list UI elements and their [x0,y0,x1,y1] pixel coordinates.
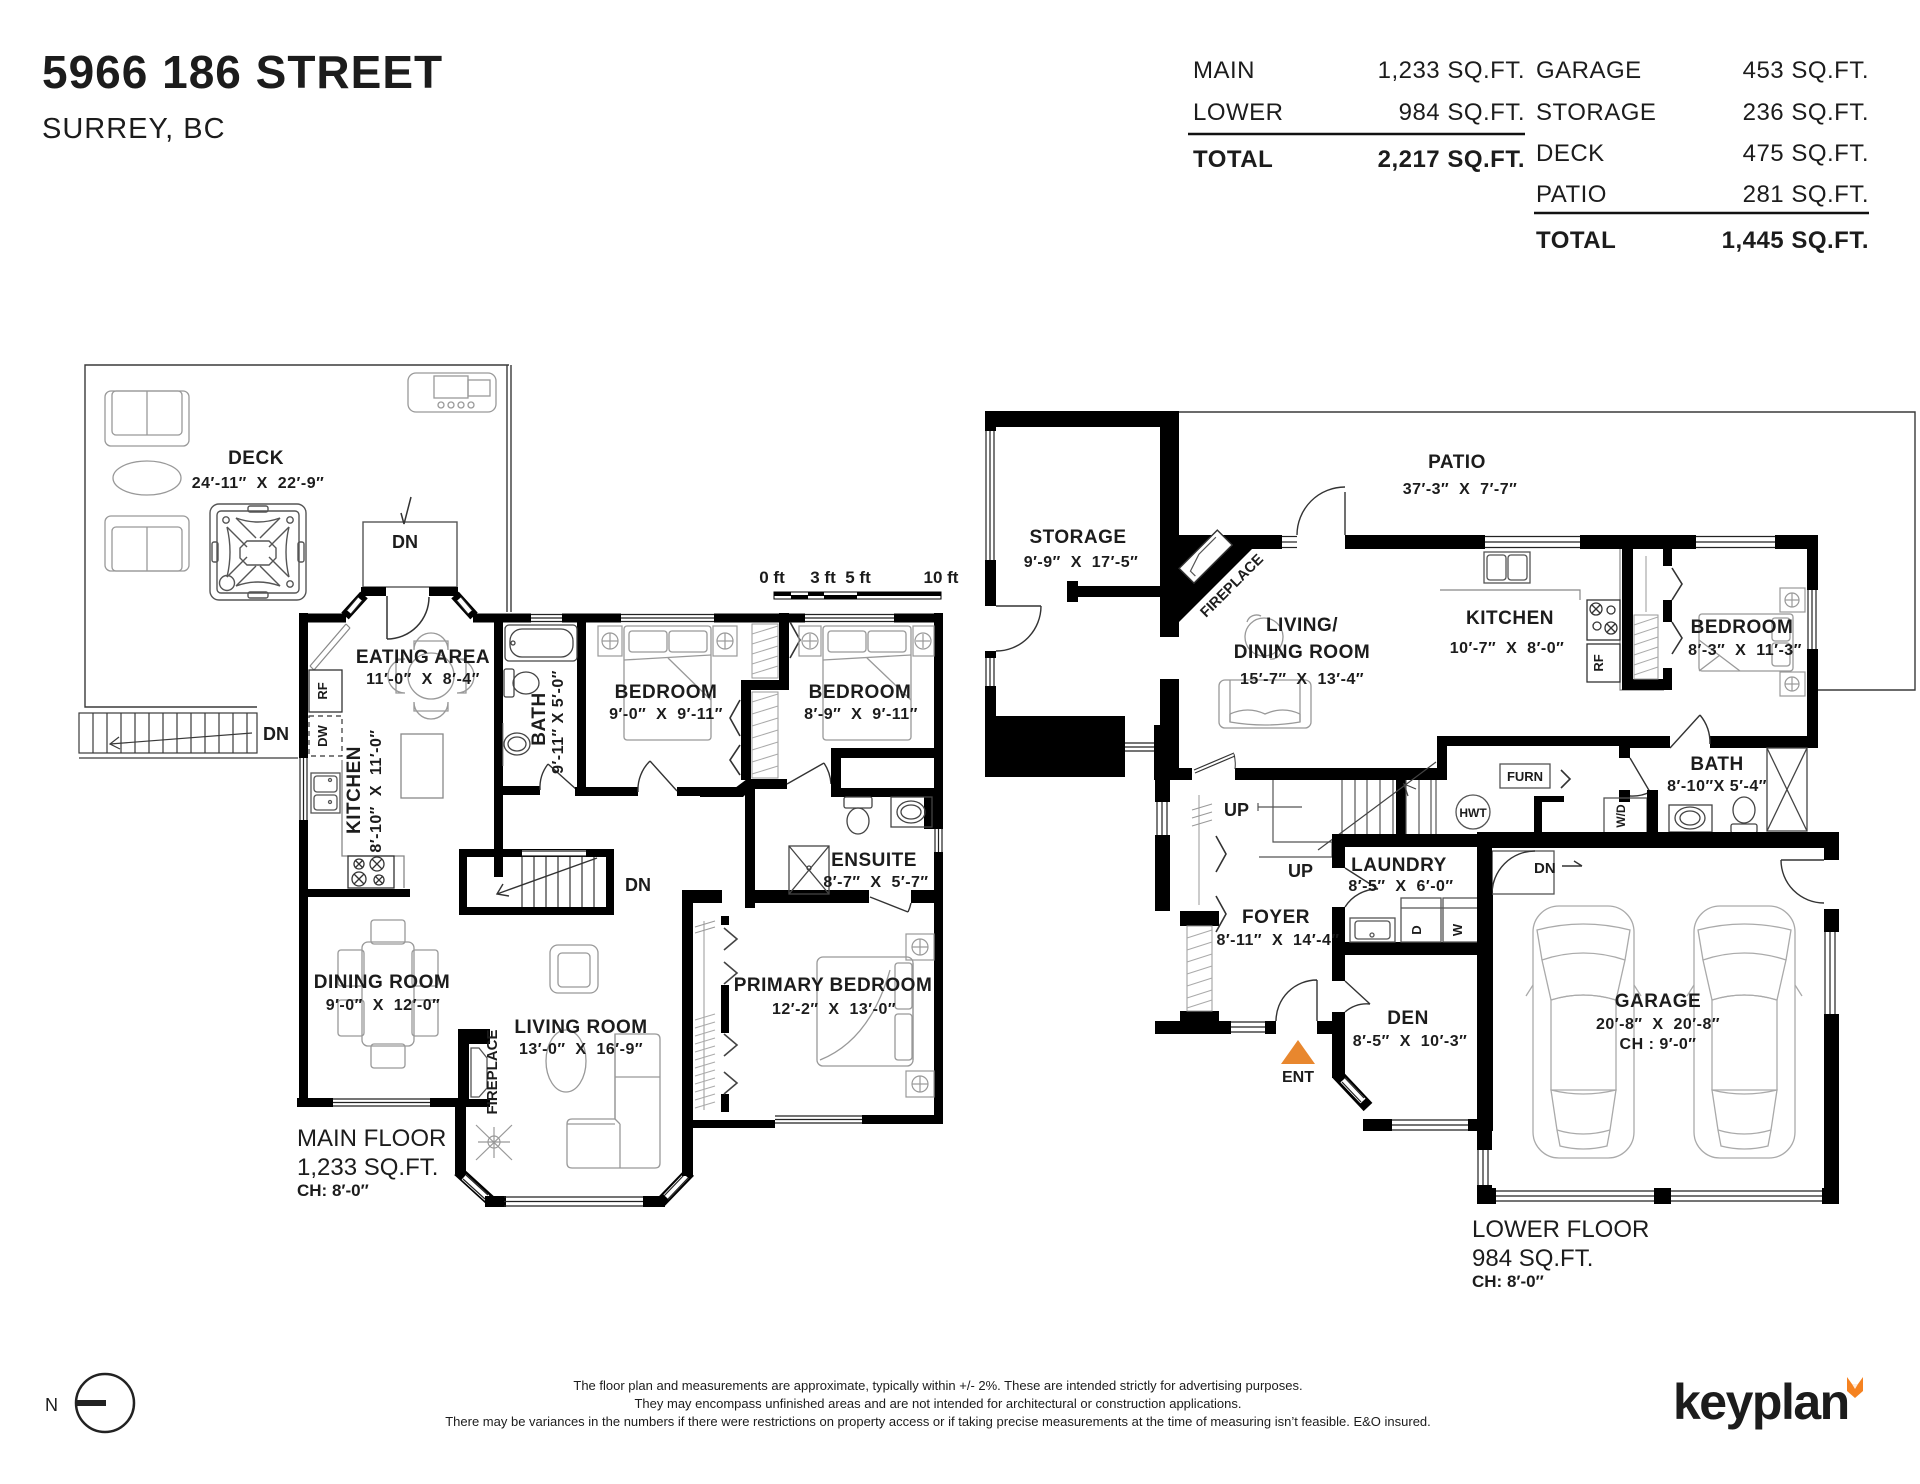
svg-text:LIVING/: LIVING/ [1266,615,1338,636]
svg-text:N: N [45,1395,58,1415]
svg-text:MAIN FLOOR: MAIN FLOOR [297,1125,446,1152]
svg-text:LAUNDRY: LAUNDRY [1351,855,1447,876]
svg-text:1,445 SQ.FT.: 1,445 SQ.FT. [1722,227,1869,254]
svg-text:D: D [1409,925,1424,934]
svg-text:KITCHEN: KITCHEN [1466,608,1554,629]
svg-text:DECK: DECK [228,448,284,469]
svg-text:8′-3″ X 11′-3″: 8′-3″ X 11′-3″ [1688,642,1802,659]
svg-text:PRIMARY BEDROOM: PRIMARY BEDROOM [734,975,933,996]
svg-text:BEDROOM: BEDROOM [1691,617,1794,638]
svg-text:9′-11″ X 5′-0″: 9′-11″ X 5′-0″ [550,670,567,774]
svg-text:5 ft: 5 ft [845,568,871,587]
svg-text:UP: UP [1224,800,1249,820]
svg-text:8′-5″ X 10′-3″: 8′-5″ X 10′-3″ [1353,1033,1468,1050]
svg-text:RF: RF [315,682,330,699]
svg-text:RF: RF [1591,654,1606,671]
svg-text:STORAGE: STORAGE [1029,527,1126,548]
svg-text:GARAGE: GARAGE [1615,991,1701,1012]
svg-text:11′-0″ X 8′-4″: 11′-0″ X 8′-4″ [366,671,480,688]
svg-text:FIREPLACE: FIREPLACE [484,1029,501,1114]
svg-text:1,233 SQ.FT.: 1,233 SQ.FT. [297,1154,438,1181]
svg-text:9′-9″ X 17′-5″: 9′-9″ X 17′-5″ [1024,554,1139,571]
svg-text:984 SQ.FT.: 984 SQ.FT. [1472,1245,1593,1272]
svg-text:CH : 9′-0″: CH : 9′-0″ [1620,1036,1697,1053]
svg-text:TOTAL: TOTAL [1193,146,1273,173]
svg-text:9′-0″ X 12′-0″: 9′-0″ X 12′-0″ [326,997,441,1014]
svg-text:LOWER: LOWER [1193,99,1284,126]
svg-text:DEN: DEN [1387,1008,1429,1029]
svg-text:GARAGE: GARAGE [1536,57,1642,84]
svg-text:CH: 8′-0″: CH: 8′-0″ [1472,1272,1544,1291]
svg-text:12′-2″ X 13′-0″: 12′-2″ X 13′-0″ [772,1001,896,1018]
svg-text:8′-10″ X 11′-0″: 8′-10″ X 11′-0″ [368,729,385,852]
svg-text:8′-7″ X 5′-7″: 8′-7″ X 5′-7″ [823,874,928,891]
svg-text:15′-7″ X 13′-4″: 15′-7″ X 13′-4″ [1240,671,1364,688]
svg-text:9′-0″ X 9′-11″: 9′-0″ X 9′-11″ [609,706,723,723]
svg-text:37′-3″ X 7′-7″: 37′-3″ X 7′-7″ [1403,481,1518,498]
svg-text:BEDROOM: BEDROOM [615,682,718,703]
svg-text:DN: DN [392,532,418,552]
svg-text:UP: UP [1288,861,1313,881]
svg-text:5966 186 STREET: 5966 186 STREET [42,46,443,98]
svg-text:FURN: FURN [1507,769,1543,784]
svg-text:MAIN: MAIN [1193,57,1255,84]
svg-text:DECK: DECK [1536,140,1605,167]
svg-text:W/D: W/D [1614,804,1628,828]
svg-text:PATIO: PATIO [1428,452,1486,473]
svg-text:LIVING ROOM: LIVING ROOM [514,1017,647,1038]
svg-text:The floor plan and measurement: The floor plan and measurements are appr… [573,1378,1302,1393]
svg-text:They may encompass unfinished: They may encompass unfinished areas and … [634,1396,1241,1411]
svg-text:10′-7″ X 8′-0″: 10′-7″ X 8′-0″ [1450,640,1565,657]
svg-text:8′-10″X 5′-4″: 8′-10″X 5′-4″ [1667,778,1767,795]
svg-text:STORAGE: STORAGE [1536,99,1656,126]
svg-text:0 ft: 0 ft [759,568,785,587]
svg-text:PATIO: PATIO [1536,181,1607,208]
svg-text:8′-9″ X 9′-11″: 8′-9″ X 9′-11″ [804,706,918,723]
svg-text:DINING ROOM: DINING ROOM [1234,642,1370,663]
svg-text:LOWER FLOOR: LOWER FLOOR [1472,1216,1649,1243]
svg-text:BATH: BATH [1690,754,1743,775]
svg-text:DN: DN [1534,860,1556,877]
svg-text:FOYER: FOYER [1242,907,1310,928]
svg-text:BEDROOM: BEDROOM [809,682,912,703]
svg-text:20′-8″ X 20′-8″: 20′-8″ X 20′-8″ [1596,1016,1720,1033]
svg-text:EATING AREA: EATING AREA [356,647,490,668]
svg-text:2,217 SQ.FT.: 2,217 SQ.FT. [1378,146,1525,173]
svg-text:DN: DN [263,724,289,744]
svg-text:ENT: ENT [1282,1069,1314,1086]
svg-text:DINING ROOM: DINING ROOM [314,972,450,993]
svg-text:ENSUITE: ENSUITE [831,850,917,871]
svg-text:TOTAL: TOTAL [1536,227,1616,254]
svg-text:475 SQ.FT.: 475 SQ.FT. [1743,140,1869,167]
svg-text:SURREY, BC: SURREY, BC [42,113,226,145]
svg-text:8′-11″ X 14′-4″: 8′-11″ X 14′-4″ [1216,932,1339,949]
svg-text:13′-0″ X 16′-9″: 13′-0″ X 16′-9″ [519,1041,643,1058]
svg-text:3 ft: 3 ft [810,568,836,587]
svg-text:1,233 SQ.FT.: 1,233 SQ.FT. [1378,57,1525,84]
svg-text:236 SQ.FT.: 236 SQ.FT. [1743,99,1869,126]
svg-text:8′-5″ X 6′-0″: 8′-5″ X 6′-0″ [1348,878,1453,895]
svg-text:453 SQ.FT.: 453 SQ.FT. [1743,57,1869,84]
svg-text:984 SQ.FT.: 984 SQ.FT. [1399,99,1525,126]
svg-text:HWT: HWT [1459,806,1487,820]
svg-text:BATH: BATH [529,692,550,745]
svg-text:W: W [1450,923,1465,936]
svg-text:DW: DW [315,724,330,746]
svg-text:10 ft: 10 ft [924,568,959,587]
svg-text:281 SQ.FT.: 281 SQ.FT. [1743,181,1869,208]
svg-text:KITCHEN: KITCHEN [344,746,365,834]
svg-text:DN: DN [625,875,651,895]
svg-text:CH: 8′-0″: CH: 8′-0″ [297,1181,369,1200]
svg-text:24′-11″ X 22′-9″: 24′-11″ X 22′-9″ [192,475,325,492]
svg-text:keyplan: keyplan [1673,1374,1849,1430]
svg-text:There may be variances in the: There may be variances in the numbers if… [445,1414,1431,1429]
